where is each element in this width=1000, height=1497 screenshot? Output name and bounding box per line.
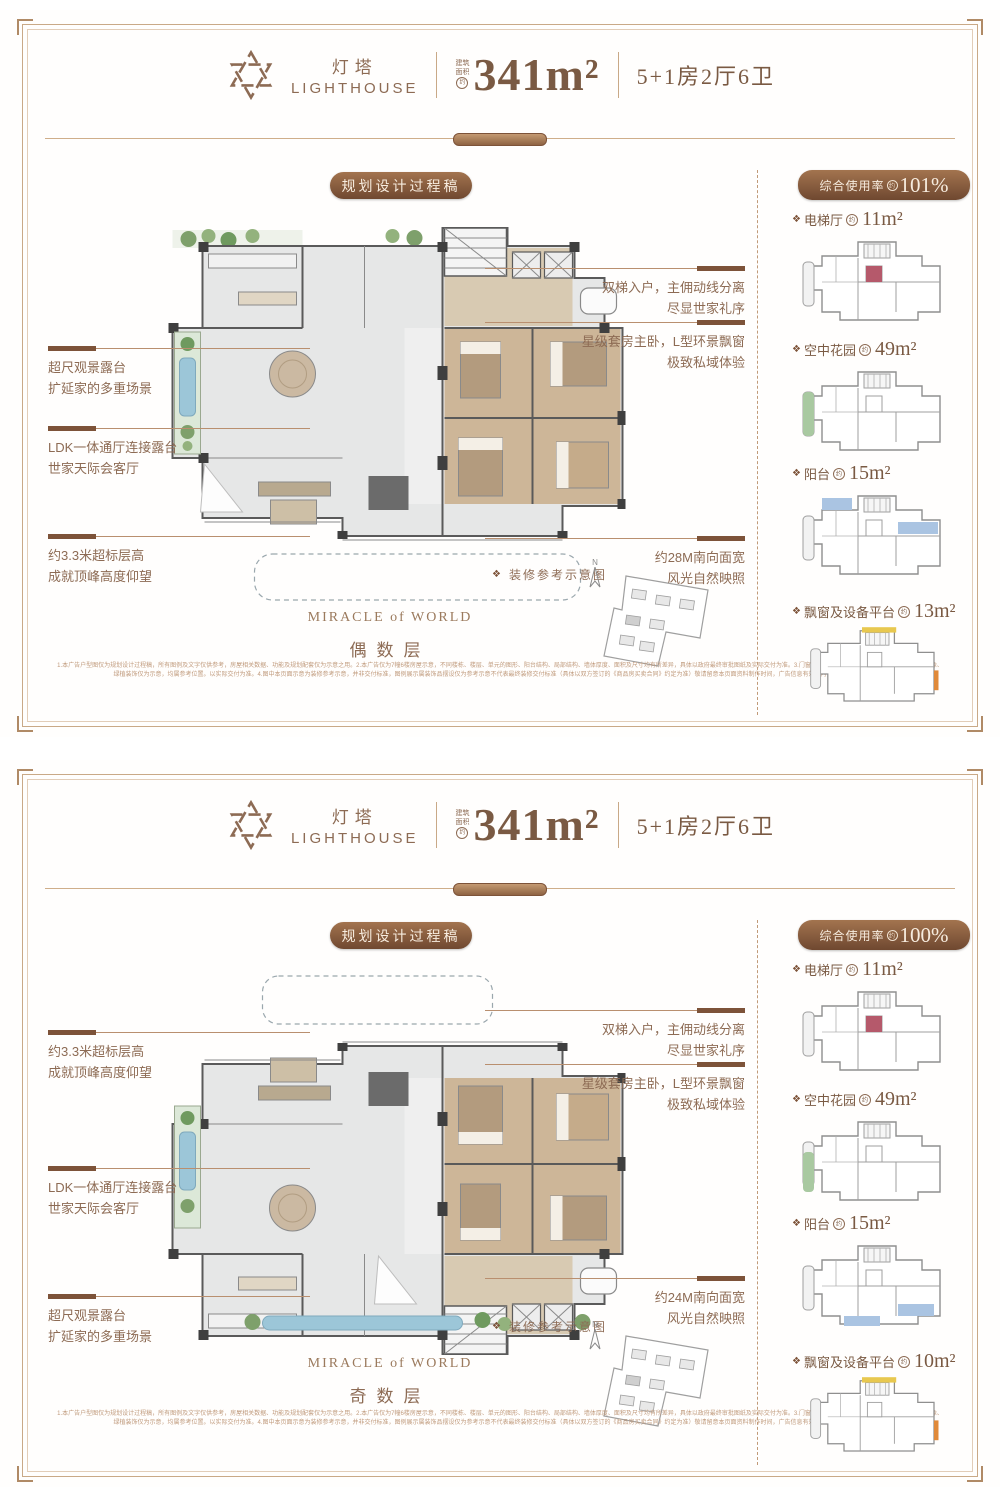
- diamond-bullet-icon: ❖: [492, 569, 503, 580]
- header-divider: [618, 52, 619, 98]
- annotation-master-suite: 星级套房主卧，L型环景飘窗 极致私域体验: [485, 1064, 745, 1115]
- annotation-ldk: LDK一体通厅连接露台 世家天际会客厅: [48, 1168, 310, 1219]
- mini-plan-elevator-hall: [795, 980, 965, 1080]
- annotation-double-elevator: 双梯入户，主佣动线分离 尽显世家礼序: [485, 1010, 745, 1061]
- process-badge: 规划设计过程稿: [330, 172, 472, 199]
- slogan: MIRACLE of WORLD: [280, 610, 500, 626]
- mini-plan-baywindow: [795, 1370, 965, 1460]
- area-group: 建筑 面积 约 341m²: [455, 798, 599, 851]
- usage-rate-badge: 综合使用率 约 100%: [798, 920, 970, 950]
- annotation-ceiling-height: 约3.3米超标层高 成就顶峰高度仰望: [48, 536, 310, 587]
- diamond-bullet-icon: ❖: [792, 606, 801, 617]
- diamond-bullet-icon: ❖: [792, 1094, 801, 1105]
- brand-logo: 灯塔 LIGHTHOUSE: [225, 799, 419, 851]
- area-value: 341m²: [473, 798, 599, 851]
- annotation-double-elevator: 双梯入户，主佣动线分离 尽显世家礼序: [485, 268, 745, 319]
- brand-name-cn: 灯塔: [291, 53, 419, 78]
- slogan: MIRACLE of WORLD: [280, 1356, 500, 1372]
- rule-ornament: [453, 883, 547, 896]
- diamond-bullet-icon: ❖: [792, 1218, 801, 1229]
- process-badge: 规划设计过程稿: [330, 922, 472, 949]
- sidebar-item-elevator-hall: ❖电梯厅 约 11m²: [792, 958, 982, 981]
- header-rule: [45, 888, 955, 889]
- brand-name-en: LIGHTHOUSE: [291, 80, 419, 97]
- floor-label: 奇数层: [280, 1382, 500, 1407]
- annotation-pointer: [485, 1010, 745, 1011]
- diamond-bullet-icon: ❖: [792, 1356, 801, 1367]
- lighthouse-star-icon: [225, 799, 277, 851]
- sidebar-item-sky-garden: ❖空中花园 约 49m²: [792, 1088, 982, 1111]
- sidebar-separator: [757, 170, 758, 715]
- floor-label: 偶数层: [280, 636, 500, 661]
- mini-plan-balcony: [795, 1234, 965, 1334]
- header-divider: [618, 802, 619, 848]
- site-key-plan: [596, 568, 716, 673]
- diamond-bullet-icon: ❖: [492, 1321, 503, 1332]
- usage-rate-badge: 综合使用率 约 101%: [798, 170, 970, 200]
- diamond-bullet-icon: ❖: [792, 214, 801, 225]
- mini-plan-sky-garden: [795, 360, 965, 460]
- annotation-pointer: [48, 1296, 310, 1297]
- area-prefix: 建筑 面积 约: [455, 60, 469, 89]
- header: 灯塔 LIGHTHOUSE 建筑 面积 约 341m² 5+1房2厅6卫: [0, 798, 1000, 851]
- annotation-pointer: [485, 1278, 745, 1279]
- header-divider: [436, 52, 437, 98]
- annotation-pointer: [485, 538, 745, 539]
- mini-plan-sky-garden: [795, 1110, 965, 1210]
- diamond-bullet-icon: ❖: [792, 468, 801, 479]
- sidebar-item-sky-garden: ❖空中花园 约 49m²: [792, 338, 982, 361]
- rule-ornament: [453, 133, 547, 146]
- approx-circle: 约: [456, 827, 468, 839]
- annotation-pointer: [48, 348, 310, 349]
- panel-even-floor: 灯塔 LIGHTHOUSE 建筑 面积 约 341m² 5+1房2厅6卫 规划设…: [0, 10, 1000, 737]
- area-prefix: 建筑 面积 约: [455, 810, 469, 839]
- annotation-pointer: [48, 1032, 310, 1033]
- annotation-ceiling-height: 约3.3米超标层高 成就顶峰高度仰望: [48, 1032, 310, 1083]
- brand-name-en: LIGHTHOUSE: [291, 830, 419, 847]
- lighthouse-star-icon: [225, 49, 277, 101]
- sidebar-item-elevator-hall: ❖电梯厅 约 11m²: [792, 208, 982, 231]
- brand-name-cn: 灯塔: [291, 803, 419, 828]
- annotation-pointer: [485, 268, 745, 269]
- mini-plan-baywindow: [795, 620, 965, 710]
- annotation-pointer: [48, 428, 310, 429]
- approx-circle: 约: [456, 77, 468, 89]
- unit-layout: 5+1房2厅6卫: [637, 59, 775, 91]
- annotation-pointer: [485, 322, 745, 323]
- unit-layout: 5+1房2厅6卫: [637, 809, 775, 841]
- diamond-bullet-icon: ❖: [792, 964, 801, 975]
- annotation-pointer: [48, 536, 310, 537]
- sidebar-item-balcony: ❖阳台 约 15m²: [792, 462, 982, 485]
- header-rule: [45, 138, 955, 139]
- diamond-bullet-icon: ❖: [792, 344, 801, 355]
- header-divider: [436, 802, 437, 848]
- sidebar-separator: [757, 920, 758, 1465]
- annotation-master-suite: 星级套房主卧，L型环景飘窗 极致私域体验: [485, 322, 745, 373]
- annotation-pointer: [48, 1168, 310, 1169]
- brand-logo: 灯塔 LIGHTHOUSE: [225, 49, 419, 101]
- annotation-terrace: 超尺观景露台 扩延家的多重场景: [48, 1296, 310, 1347]
- area-value: 341m²: [473, 48, 599, 101]
- annotation-pointer: [485, 1064, 745, 1065]
- sidebar-item-balcony: ❖阳台 约 15m²: [792, 1212, 982, 1235]
- area-group: 建筑 面积 约 341m²: [455, 48, 599, 101]
- annotation-terrace: 超尺观景露台 扩延家的多重场景: [48, 348, 310, 399]
- panel-odd-floor: 灯塔 LIGHTHOUSE 建筑 面积 约 341m² 5+1房2厅6卫 规划设…: [0, 760, 1000, 1487]
- mini-plan-balcony: [795, 484, 965, 584]
- mini-plan-elevator-hall: [795, 230, 965, 330]
- annotation-ldk: LDK一体通厅连接露台 世家天际会客厅: [48, 428, 310, 479]
- header: 灯塔 LIGHTHOUSE 建筑 面积 约 341m² 5+1房2厅6卫: [0, 48, 1000, 101]
